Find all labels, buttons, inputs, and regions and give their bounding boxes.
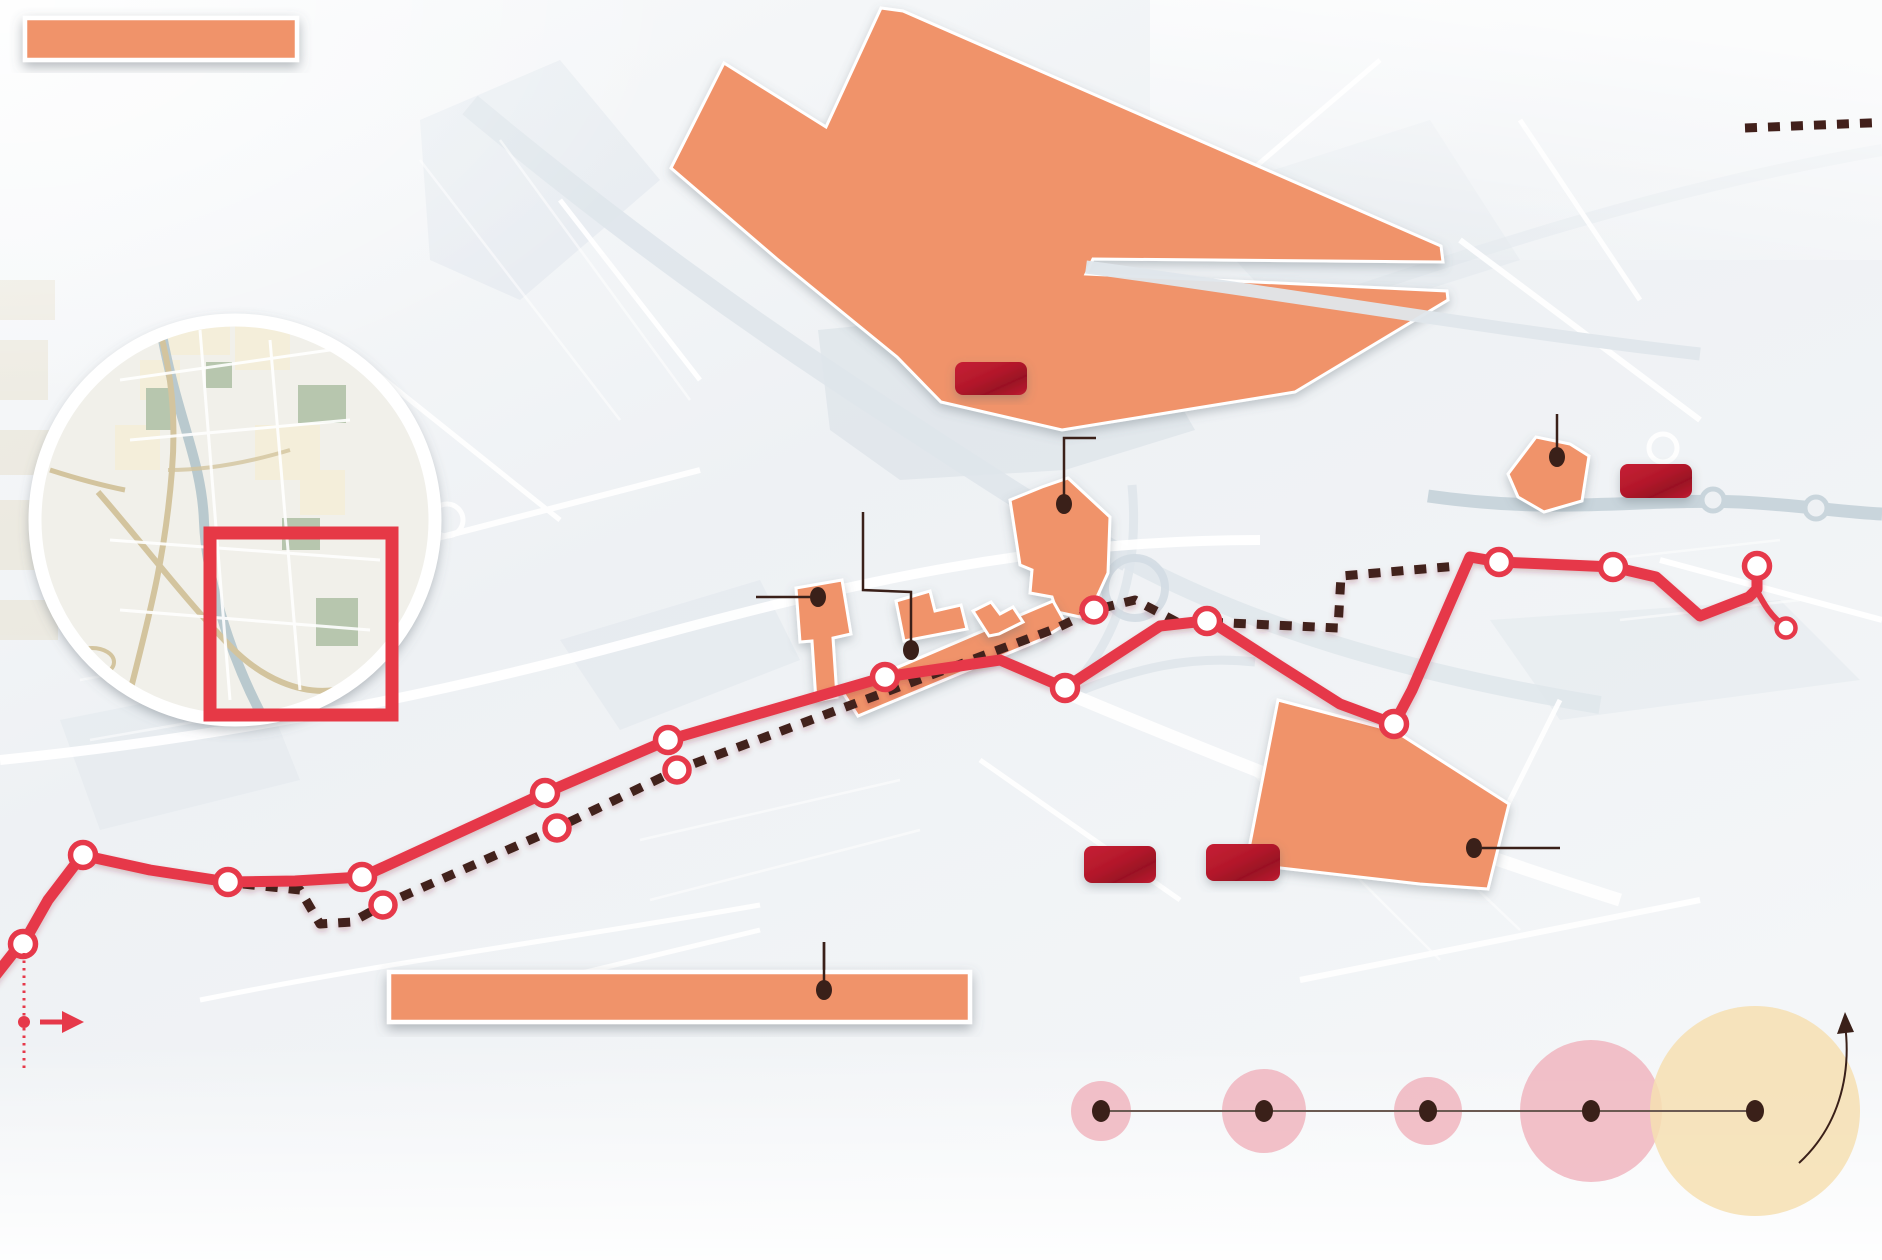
badge-3 — [1084, 846, 1156, 883]
tram-stop — [11, 932, 36, 957]
scale-dot — [1582, 1100, 1600, 1122]
callout-wedge-dot — [1549, 447, 1565, 467]
callout-building-west-dot — [810, 587, 826, 607]
scale-dot — [1419, 1100, 1437, 1122]
tram-stop — [533, 781, 558, 806]
tram-stop — [1382, 712, 1407, 737]
alt-route-stop — [545, 816, 569, 840]
callout-district-mid-dot — [1056, 494, 1072, 514]
tram-stop — [1053, 676, 1078, 701]
map-canvas — [0, 0, 1882, 1260]
tram-stop — [1195, 609, 1220, 634]
legend-zone-swatch — [25, 18, 297, 60]
tram-stop — [350, 865, 375, 890]
tram-stop — [873, 665, 898, 690]
callout-strip-dot — [903, 640, 919, 660]
alt-route-stop — [665, 758, 689, 782]
bottom-annotation-bar — [389, 972, 970, 1022]
scale-dot — [1092, 1100, 1110, 1122]
tram-terminal-stop — [1777, 619, 1796, 638]
badge-4 — [1206, 844, 1280, 881]
tram-stop — [1601, 555, 1626, 580]
tram-stop — [656, 728, 681, 753]
tram-stop — [1745, 554, 1770, 579]
scale-dot — [1255, 1100, 1273, 1122]
map-svg — [0, 0, 1882, 1260]
tram-stop — [1487, 550, 1512, 575]
tram-stop — [216, 870, 241, 895]
alt-route-stop — [1082, 598, 1106, 622]
tram-stop — [71, 843, 96, 868]
badge-2 — [1620, 464, 1692, 498]
scale-dot — [1746, 1100, 1764, 1122]
bottom-bar-leader-dot — [816, 980, 832, 1000]
west-dot — [18, 1016, 30, 1028]
alt-route-stop — [371, 893, 395, 917]
callout-southeast-dot — [1466, 838, 1482, 858]
badge-1 — [955, 362, 1027, 395]
